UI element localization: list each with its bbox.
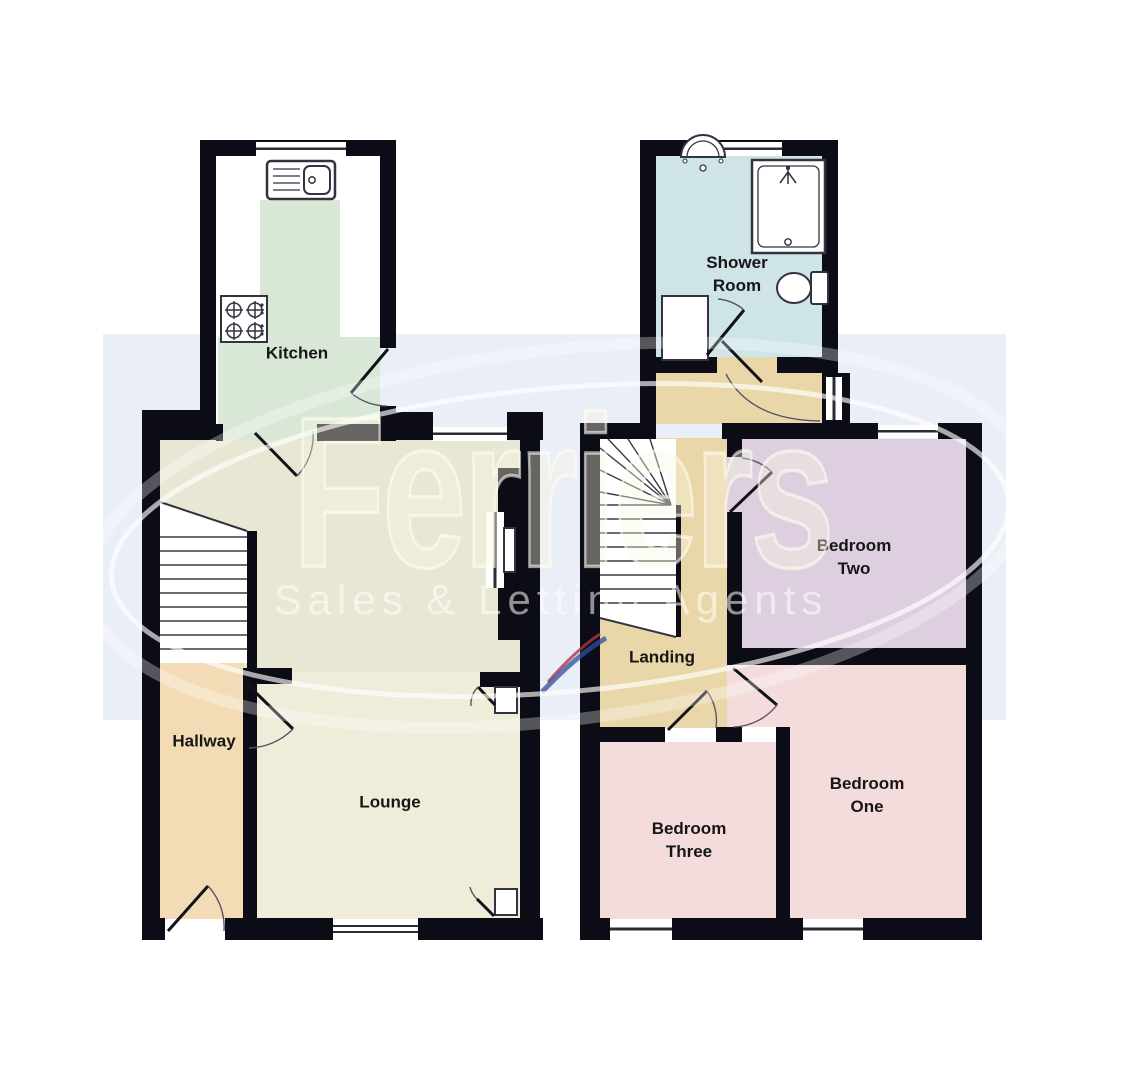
wall-first-left	[580, 423, 600, 940]
wall-bedroom-two-stub	[727, 439, 742, 457]
wall-first-right	[966, 423, 982, 940]
wall-shower-bottom-b	[777, 357, 838, 373]
wall-ground-left	[142, 410, 160, 940]
wall-ground-bottom-b	[225, 918, 333, 940]
wall-divider-stub-right	[480, 672, 540, 687]
room-label-hallway: Hallway	[172, 730, 235, 753]
wall-under-kitchen	[317, 424, 396, 441]
room-label-line: One	[830, 795, 905, 818]
wall-ground-bottom-c	[418, 918, 543, 940]
window-landing-side	[826, 377, 842, 420]
wall-first-bottom-c	[863, 918, 982, 940]
room-label-kitchen: Kitchen	[266, 342, 328, 365]
room-floor-bedroom-one	[727, 665, 966, 727]
lounge-door-panel-top	[494, 686, 518, 714]
room-label-bedroom-one: Bedroom One	[830, 772, 905, 818]
floor-plan-canvas: Kitchen Hallway Lounge Shower Room Landi…	[0, 0, 1123, 1080]
wall-first-top-b	[722, 423, 878, 439]
wall-bedroom-two-bottom	[727, 648, 966, 665]
room-label-line: Room	[706, 274, 767, 297]
window-dining	[433, 427, 507, 441]
wall-shower-right	[822, 140, 838, 373]
room-floor-landing-corridor	[656, 373, 822, 424]
wall-first-bottom-b	[672, 918, 803, 940]
wall-bedroom-three-top-a	[600, 727, 665, 742]
wall-front-right-a	[396, 412, 433, 440]
room-floor-kitchen-doorway	[223, 424, 317, 441]
front-door-opening	[165, 920, 225, 939]
window-bedroom-one	[803, 921, 863, 937]
side-bay-panel	[503, 527, 516, 573]
room-label-shower-room: Shower Room	[706, 251, 767, 297]
wall-bedroom-three-top-b	[716, 727, 742, 742]
room-label-line: Bedroom	[652, 817, 727, 840]
window-kitchen	[256, 142, 346, 156]
room-floor-landing	[600, 438, 727, 728]
room-label-lounge: Lounge	[359, 791, 420, 814]
room-label-line: Three	[652, 840, 727, 863]
room-floor-hallway	[160, 663, 243, 919]
wall-hallway-lounge	[243, 684, 257, 918]
wall-ground-bottom-a	[142, 918, 165, 940]
wall-first-bottom-a	[580, 918, 610, 940]
room-label-bedroom-three: Bedroom Three	[652, 817, 727, 863]
room-label-line: Bedroom	[830, 772, 905, 795]
window-lounge	[333, 921, 418, 937]
wall-shower-bottom-a	[640, 357, 717, 373]
room-label-bedroom-two: Bedroom Two	[817, 534, 892, 580]
wall-bedroom-two-left	[727, 512, 742, 665]
room-floor-kitchen	[260, 200, 340, 340]
room-floor-shower-doorway	[717, 357, 777, 374]
wall-kitchen-left	[200, 140, 216, 440]
room-label-landing: Landing	[629, 646, 695, 669]
room-floor-dining-area	[160, 440, 520, 673]
wall-stairs-side-ground	[247, 531, 257, 668]
room-floor-bedroom-one	[790, 727, 966, 919]
wall-shower-left	[640, 140, 656, 424]
wall-kitchen-right-upper	[380, 140, 396, 348]
window-shower-room	[718, 142, 782, 156]
window-bedroom-two	[878, 425, 938, 438]
lounge-door-panel-bottom	[494, 888, 518, 916]
wall-stairs-side-first	[673, 505, 681, 637]
room-label-line: Bedroom	[817, 534, 892, 557]
room-label-line: Shower	[706, 251, 767, 274]
room-label-line: Two	[817, 557, 892, 580]
wall-under-kitchen-sliver	[216, 424, 223, 441]
wall-hallway-stub	[243, 668, 292, 684]
window-bedroom-three	[610, 921, 672, 937]
wall-bedroom-one-left	[776, 727, 790, 918]
window-chimney-side	[486, 512, 504, 588]
